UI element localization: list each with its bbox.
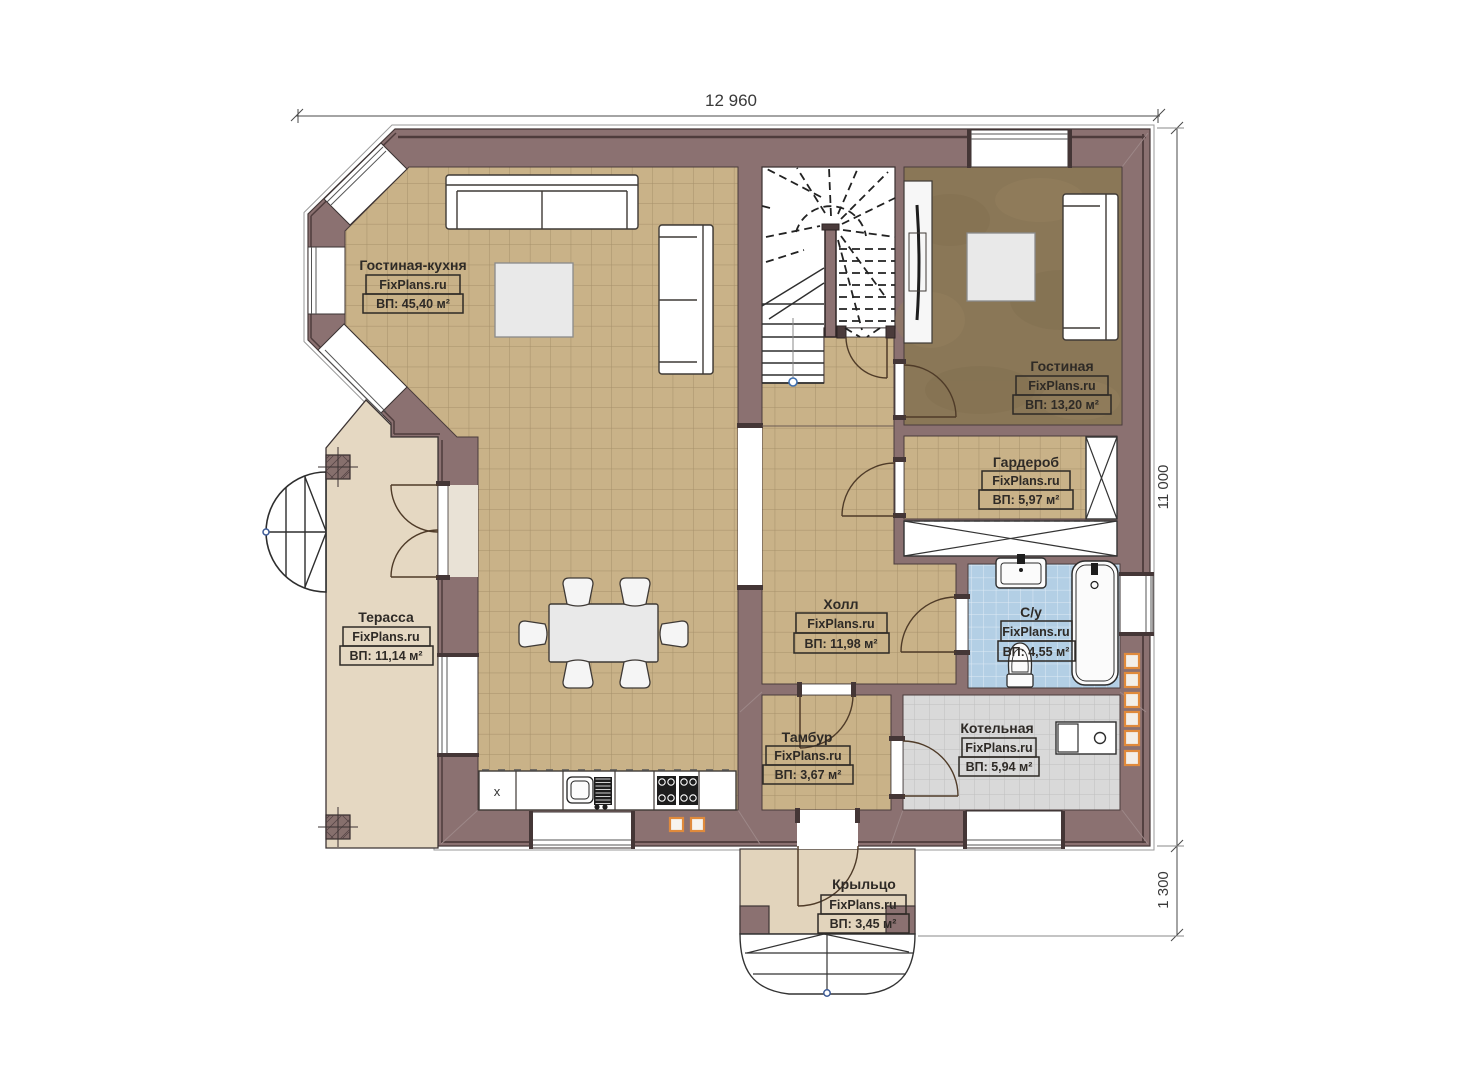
svg-text:ВП: 4,55 м²: ВП: 4,55 м² xyxy=(1003,645,1070,659)
svg-text:x: x xyxy=(494,784,501,799)
svg-text:Тамбур: Тамбур xyxy=(782,729,833,745)
svg-text:12 960: 12 960 xyxy=(705,91,757,110)
svg-text:Холл: Холл xyxy=(823,596,858,612)
svg-text:1 300: 1 300 xyxy=(1155,871,1172,909)
svg-text:ВП: 13,20 м²: ВП: 13,20 м² xyxy=(1025,398,1099,412)
svg-text:ВП: 5,94 м²: ВП: 5,94 м² xyxy=(966,760,1033,774)
svg-text:FixPlans.ru: FixPlans.ru xyxy=(992,474,1059,488)
svg-text:ВП: 45,40 м²: ВП: 45,40 м² xyxy=(376,297,450,311)
svg-text:ВП: 3,45 м²: ВП: 3,45 м² xyxy=(830,917,897,931)
svg-text:С/у: С/у xyxy=(1020,604,1042,620)
svg-text:FixPlans.ru: FixPlans.ru xyxy=(1002,625,1069,639)
svg-text:ВП: 11,98 м²: ВП: 11,98 м² xyxy=(804,637,877,651)
svg-text:Гостиная-кухня: Гостиная-кухня xyxy=(359,257,466,273)
svg-text:Гостиная: Гостиная xyxy=(1030,358,1093,374)
svg-text:FixPlans.ru: FixPlans.ru xyxy=(965,741,1032,755)
svg-text:FixPlans.ru: FixPlans.ru xyxy=(829,898,896,912)
svg-text:ВП: 11,14 м²: ВП: 11,14 м² xyxy=(349,649,422,663)
svg-text:FixPlans.ru: FixPlans.ru xyxy=(352,630,419,644)
svg-text:Гардероб: Гардероб xyxy=(993,454,1060,470)
svg-text:ВП: 5,97 м²: ВП: 5,97 м² xyxy=(993,493,1060,507)
svg-text:FixPlans.ru: FixPlans.ru xyxy=(807,617,874,631)
svg-text:11 000: 11 000 xyxy=(1155,465,1172,510)
svg-text:Крыльцо: Крыльцо xyxy=(832,876,896,892)
svg-text:FixPlans.ru: FixPlans.ru xyxy=(379,278,446,292)
svg-text:Котельная: Котельная xyxy=(960,720,1033,736)
svg-text:FixPlans.ru: FixPlans.ru xyxy=(774,749,841,763)
svg-text:ВП: 3,67 м²: ВП: 3,67 м² xyxy=(775,768,842,782)
svg-text:FixPlans.ru: FixPlans.ru xyxy=(1028,379,1095,393)
svg-text:Терасса: Терасса xyxy=(358,609,414,625)
